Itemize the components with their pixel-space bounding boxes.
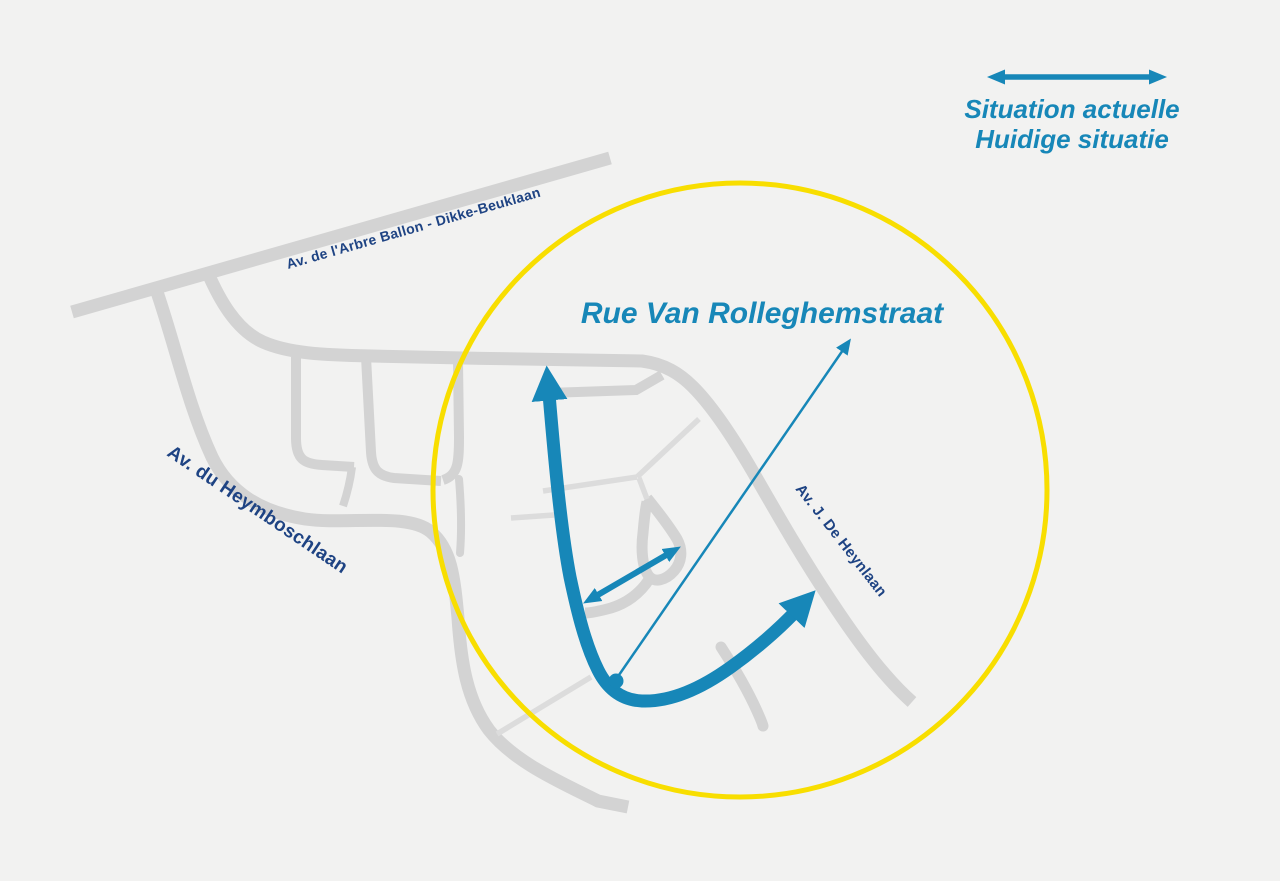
highlight-circle — [433, 183, 1047, 797]
legend-label-fr: Situation actuelle — [964, 94, 1179, 124]
road-stub-left — [343, 467, 352, 506]
road-stub-right — [459, 479, 461, 553]
region-title: Rue Van Rolleghemstraat — [581, 297, 945, 330]
situation-arrows — [549, 350, 843, 701]
lane-to-hook — [639, 478, 647, 499]
lane-northeast — [637, 419, 699, 477]
map-canvas: Situation actuelle Huidige situatie Av. … — [0, 0, 1280, 881]
road-block-right — [443, 361, 459, 480]
road-arbre-ballon — [72, 158, 610, 312]
leader-dot — [609, 674, 624, 689]
street-label-arbre-ballon: Av. de l'Arbre Ballon - Dikke-Beuklaan — [284, 184, 542, 272]
road-block-left — [296, 357, 354, 467]
legend: Situation actuelle Huidige situatie — [964, 77, 1179, 154]
legend-label-nl: Huidige situatie — [975, 124, 1169, 154]
road-heymboschlaan — [157, 292, 628, 807]
street-label-heynlaan: Av. J. De Heynlaan — [792, 481, 890, 600]
map-illustration: Situation actuelle Huidige situatie Av. … — [0, 0, 1280, 881]
road-spur-top — [548, 375, 662, 393]
road-block-middle — [366, 357, 441, 481]
lane-west-short — [511, 515, 554, 518]
